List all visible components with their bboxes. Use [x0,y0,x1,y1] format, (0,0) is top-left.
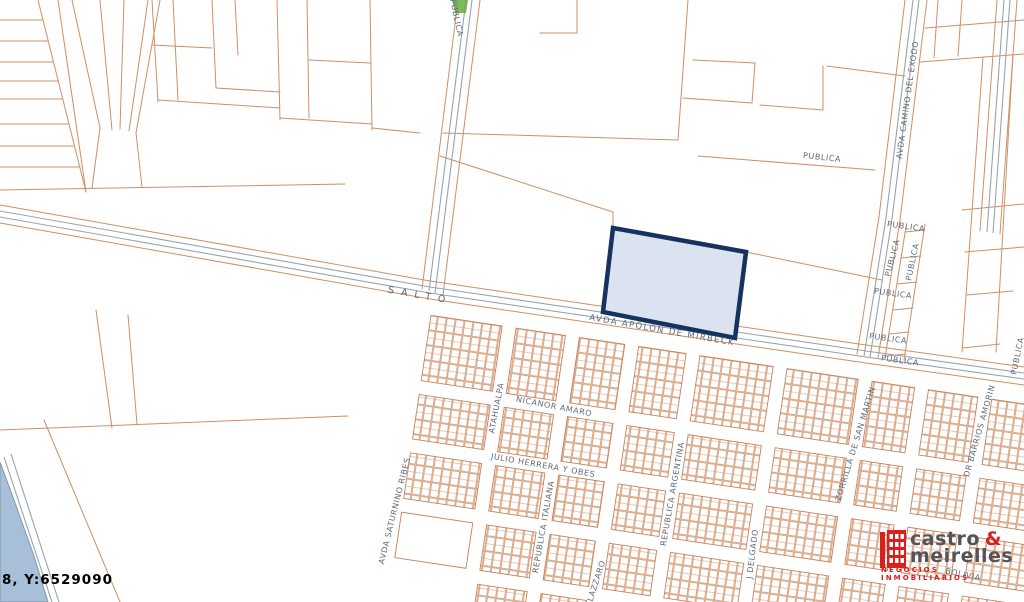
company-logo: castro& meirelles NEGOCIOS INMOBILIARIOS [866,514,1022,580]
coordinate-readout: 8, Y:6529090 [2,572,113,588]
logo-tagline: NEGOCIOS INMOBILIARIOS [881,566,1022,582]
logo-name-line2: meirelles [910,545,1013,567]
building-icon [880,530,906,568]
map-viewport[interactable]: SALTO AVDA APOLON DE MIRBECK PUBLICA PUB… [0,0,1024,602]
map-canvas[interactable] [0,0,1024,602]
